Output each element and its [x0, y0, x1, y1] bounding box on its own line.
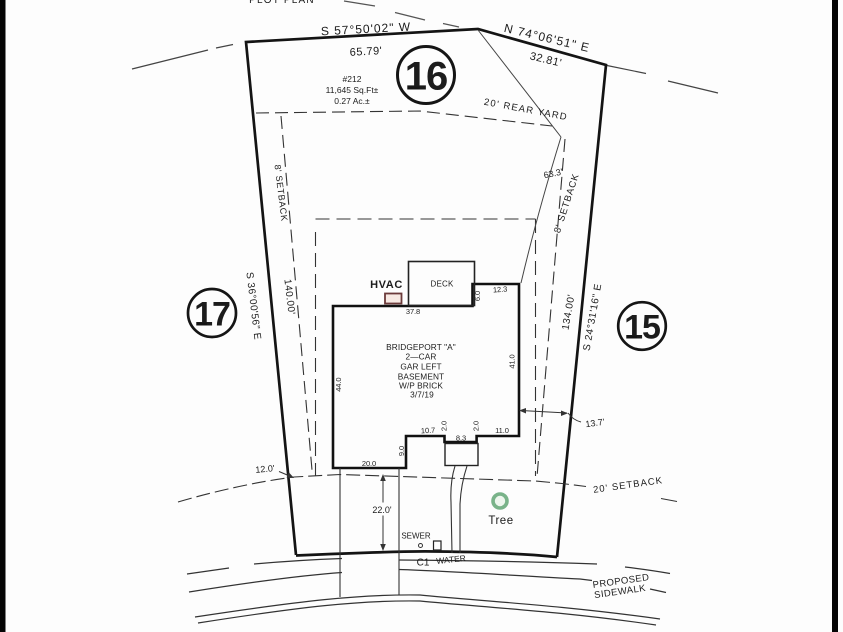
- svg-text:41.0: 41.0: [508, 354, 517, 368]
- svg-text:Tree: Tree: [488, 515, 513, 527]
- svg-text:DECK: DECK: [430, 280, 453, 289]
- svg-text:11,645 Sq.Ft±: 11,645 Sq.Ft±: [326, 85, 379, 95]
- svg-text:HVAC: HVAC: [370, 279, 403, 291]
- svg-text:6.0: 6.0: [473, 291, 482, 301]
- svg-text:22.0': 22.0': [372, 505, 392, 515]
- svg-text:44.0: 44.0: [334, 378, 343, 392]
- svg-text:17: 17: [194, 296, 230, 334]
- svg-text:20.0: 20.0: [362, 459, 376, 468]
- svg-text:2.0: 2.0: [440, 421, 449, 431]
- svg-text:12.0': 12.0': [255, 463, 275, 475]
- svg-text:GAR LEFT: GAR LEFT: [400, 361, 441, 371]
- svg-text:2—CAR: 2—CAR: [406, 352, 437, 362]
- svg-text:16: 16: [405, 55, 448, 99]
- svg-text:15: 15: [624, 309, 660, 347]
- svg-text:12.3: 12.3: [493, 285, 508, 295]
- svg-text:8.3: 8.3: [456, 434, 466, 443]
- svg-text:9.0: 9.0: [397, 446, 406, 456]
- svg-text:2.0: 2.0: [472, 421, 481, 431]
- svg-text:C1: C1: [417, 558, 430, 569]
- svg-text:37.8: 37.8: [406, 307, 420, 316]
- svg-text:65.79': 65.79': [349, 45, 382, 59]
- svg-text:SEWER: SEWER: [401, 532, 431, 541]
- svg-text:0.27 Ac.±: 0.27 Ac.±: [334, 96, 370, 106]
- svg-text:BRIDGEPORT "A": BRIDGEPORT "A": [386, 342, 456, 352]
- svg-text:10.7: 10.7: [421, 426, 436, 436]
- svg-text:11.0: 11.0: [495, 426, 509, 435]
- svg-text:3/7/19: 3/7/19: [410, 389, 434, 399]
- svg-text:#212: #212: [343, 74, 362, 84]
- svg-text:PLOT PLAN: PLOT PLAN: [249, 0, 315, 6]
